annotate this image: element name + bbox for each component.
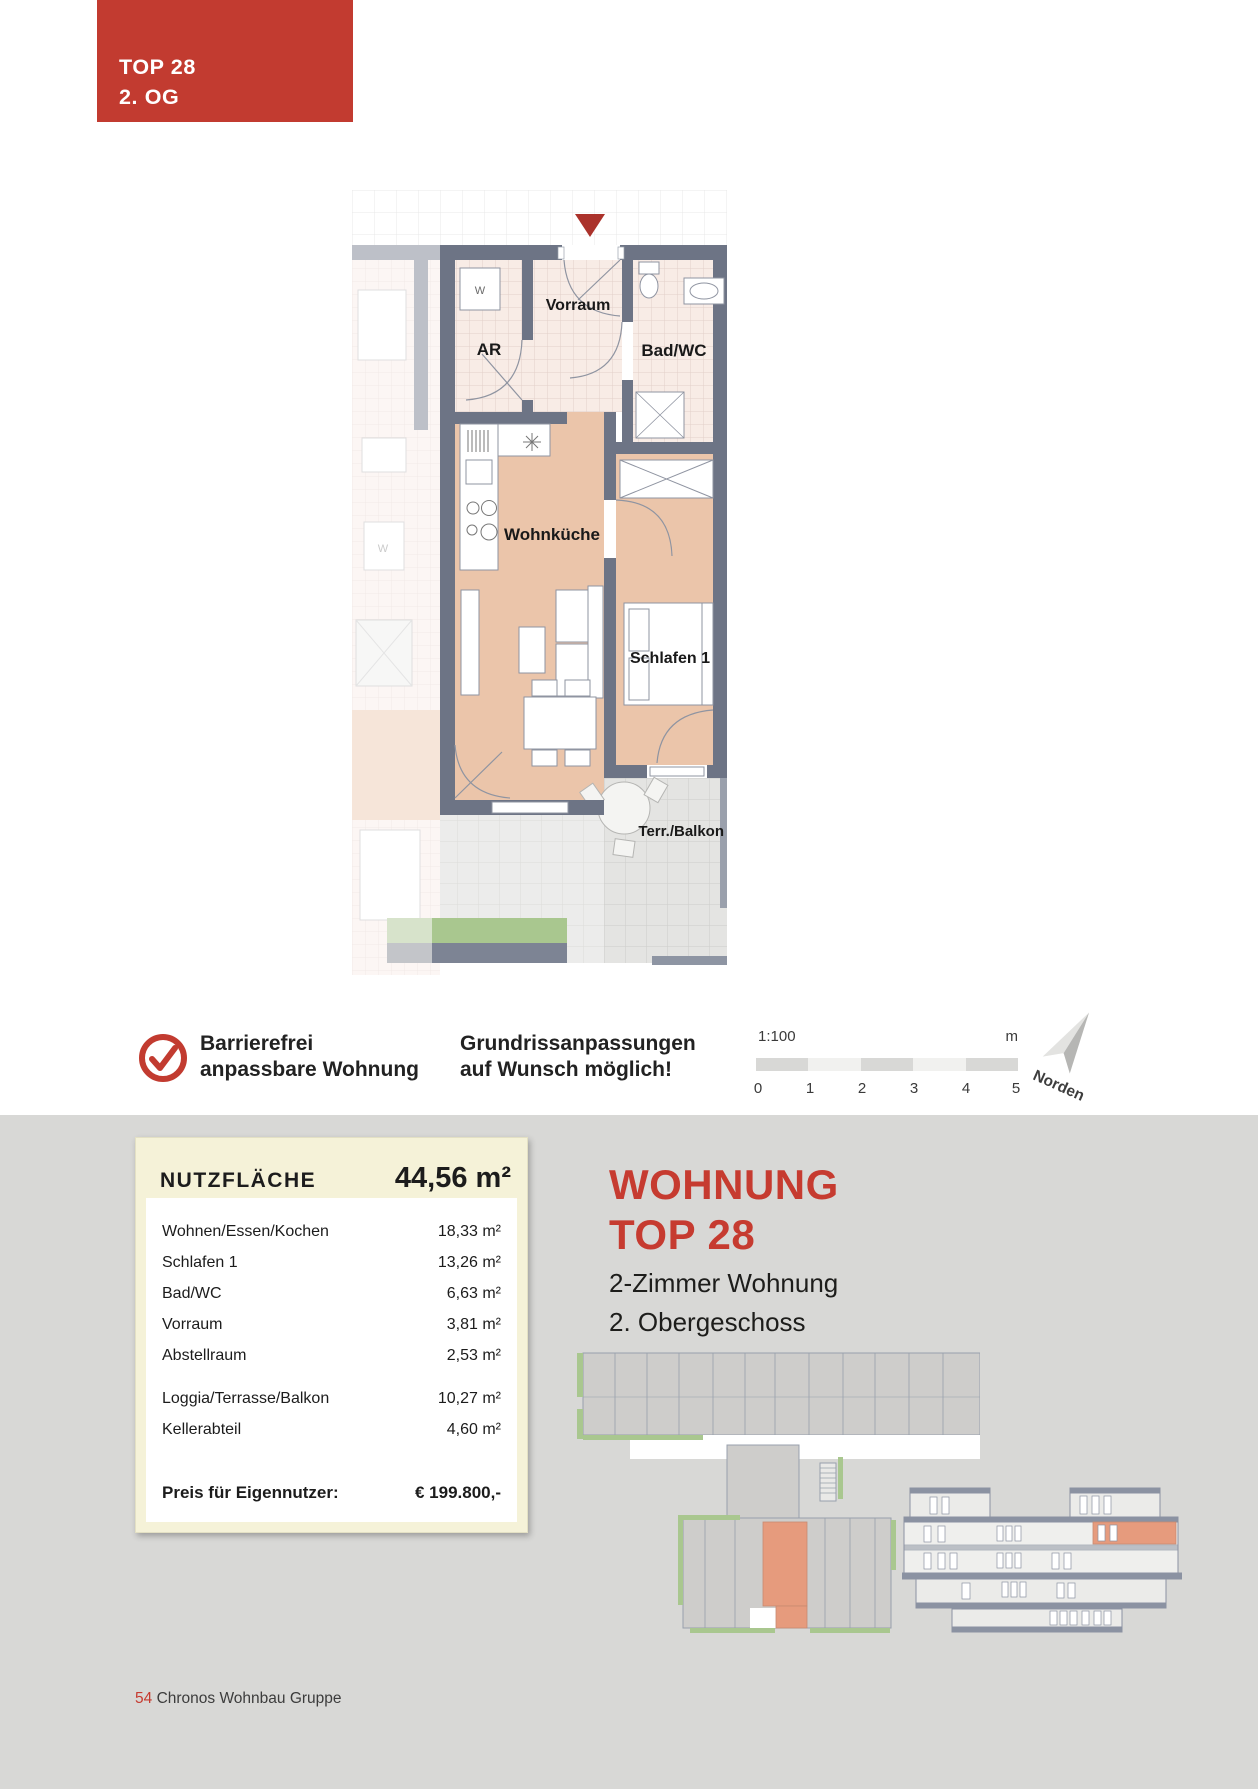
scale-bar: 1:100 m 0 1 2 3 4 5 — [756, 1028, 1018, 1108]
section-highlight-unit — [1093, 1522, 1176, 1544]
page-number: 54 — [135, 1690, 152, 1707]
sideboard — [461, 590, 479, 695]
area-table-card: NUTZFLÄCHE 44,56 m² Wohnen/Essen/Kochen1… — [135, 1137, 528, 1533]
brochure-page: TOP 28 2. OG — [0, 0, 1258, 1789]
checkmark-icon — [138, 1033, 188, 1083]
price-row: Preis für Eigennutzer: € 199.800,- — [162, 1483, 501, 1503]
barrier-free-line1: Barrierefrei — [200, 1031, 419, 1057]
company-name: Chronos Wohnbau Gruppe — [157, 1690, 342, 1707]
north-arrow-icon — [1043, 1005, 1103, 1074]
building-section — [902, 1485, 1182, 1635]
unit-tag-line1: TOP 28 — [119, 52, 353, 82]
label-vorraum: Vorraum — [546, 297, 611, 314]
table-row: Bad/WC6,63 m² — [162, 1278, 501, 1309]
balcony-door-kitchen — [492, 802, 568, 813]
coffee-table — [519, 627, 545, 673]
table-row: Loggia/Terrasse/Balkon10,27 m² — [162, 1383, 501, 1414]
terrace-rail — [720, 778, 727, 908]
label-schlafen: Schlafen 1 — [630, 650, 710, 667]
page-footer: 54 Chronos Wohnbau Gruppe — [135, 1690, 342, 1708]
scale-bar-segments — [756, 1058, 1018, 1071]
label-wohnkueche: Wohnküche — [504, 525, 600, 544]
scale-unit: m — [1006, 1028, 1019, 1045]
adaptation-line2: auf Wunsch möglich! — [460, 1057, 696, 1083]
balcony-door-bedroom — [650, 767, 704, 776]
barrier-free-note: Barrierefrei anpassbare Wohnung — [200, 1031, 419, 1083]
neighbour-apartment-left: W — [352, 245, 440, 975]
unit-subtitle-line2: 2. Obergeschoss — [609, 1306, 839, 1338]
balcony-planter — [387, 918, 567, 963]
table-row: Kellerabteil4,60 m² — [162, 1414, 501, 1445]
unit-heading: WOHNUNG TOP 28 2-Zimmer Wohnung 2. Oberg… — [609, 1160, 839, 1338]
washer-box: W — [460, 268, 500, 310]
grid-band — [352, 190, 727, 245]
svg-text:W: W — [475, 285, 486, 297]
area-table-title: NUTZFLÄCHE — [160, 1169, 316, 1193]
label-ar: AR — [477, 340, 502, 359]
barrier-free-line2: anpassbare Wohnung — [200, 1057, 419, 1083]
north-compass: Norden — [1028, 1005, 1123, 1105]
dining-table — [524, 697, 596, 749]
table-row: Schlafen 113,26 m² — [162, 1247, 501, 1278]
table-row: Abstellraum2,53 m² — [162, 1340, 501, 1371]
area-table-total: 44,56 m² — [395, 1162, 511, 1195]
price-label: Preis für Eigennutzer: — [162, 1483, 339, 1503]
area-table-body: Wohnen/Essen/Kochen18,33 m² Schlafen 113… — [146, 1198, 517, 1522]
label-bad: Bad/WC — [641, 341, 706, 360]
compass-label: Norden — [1030, 1067, 1086, 1105]
unit-subtitle-line1: 2-Zimmer Wohnung — [609, 1267, 839, 1299]
unit-heading-line2: TOP 28 — [609, 1210, 839, 1260]
table-row: Vorraum3,81 m² — [162, 1309, 501, 1340]
adaptation-note: Grundrissanpassungen auf Wunsch möglich! — [460, 1031, 696, 1083]
table-row: Wohnen/Essen/Kochen18,33 m² — [162, 1216, 501, 1247]
adaptation-line1: Grundrissanpassungen — [460, 1031, 696, 1057]
toilet — [639, 262, 659, 274]
label-terrasse: Terr./Balkon — [638, 823, 724, 840]
unit-tag-line2: 2. OG — [119, 82, 353, 112]
floorplan: W — [352, 190, 727, 975]
unit-tag: TOP 28 2. OG — [97, 0, 353, 122]
scale-ticks: 0 1 2 3 4 5 — [756, 1080, 1018, 1100]
scale-ratio: 1:100 — [758, 1028, 796, 1045]
price-value: € 199.800,- — [415, 1483, 501, 1503]
unit-heading-line1: WOHNUNG — [609, 1160, 839, 1210]
